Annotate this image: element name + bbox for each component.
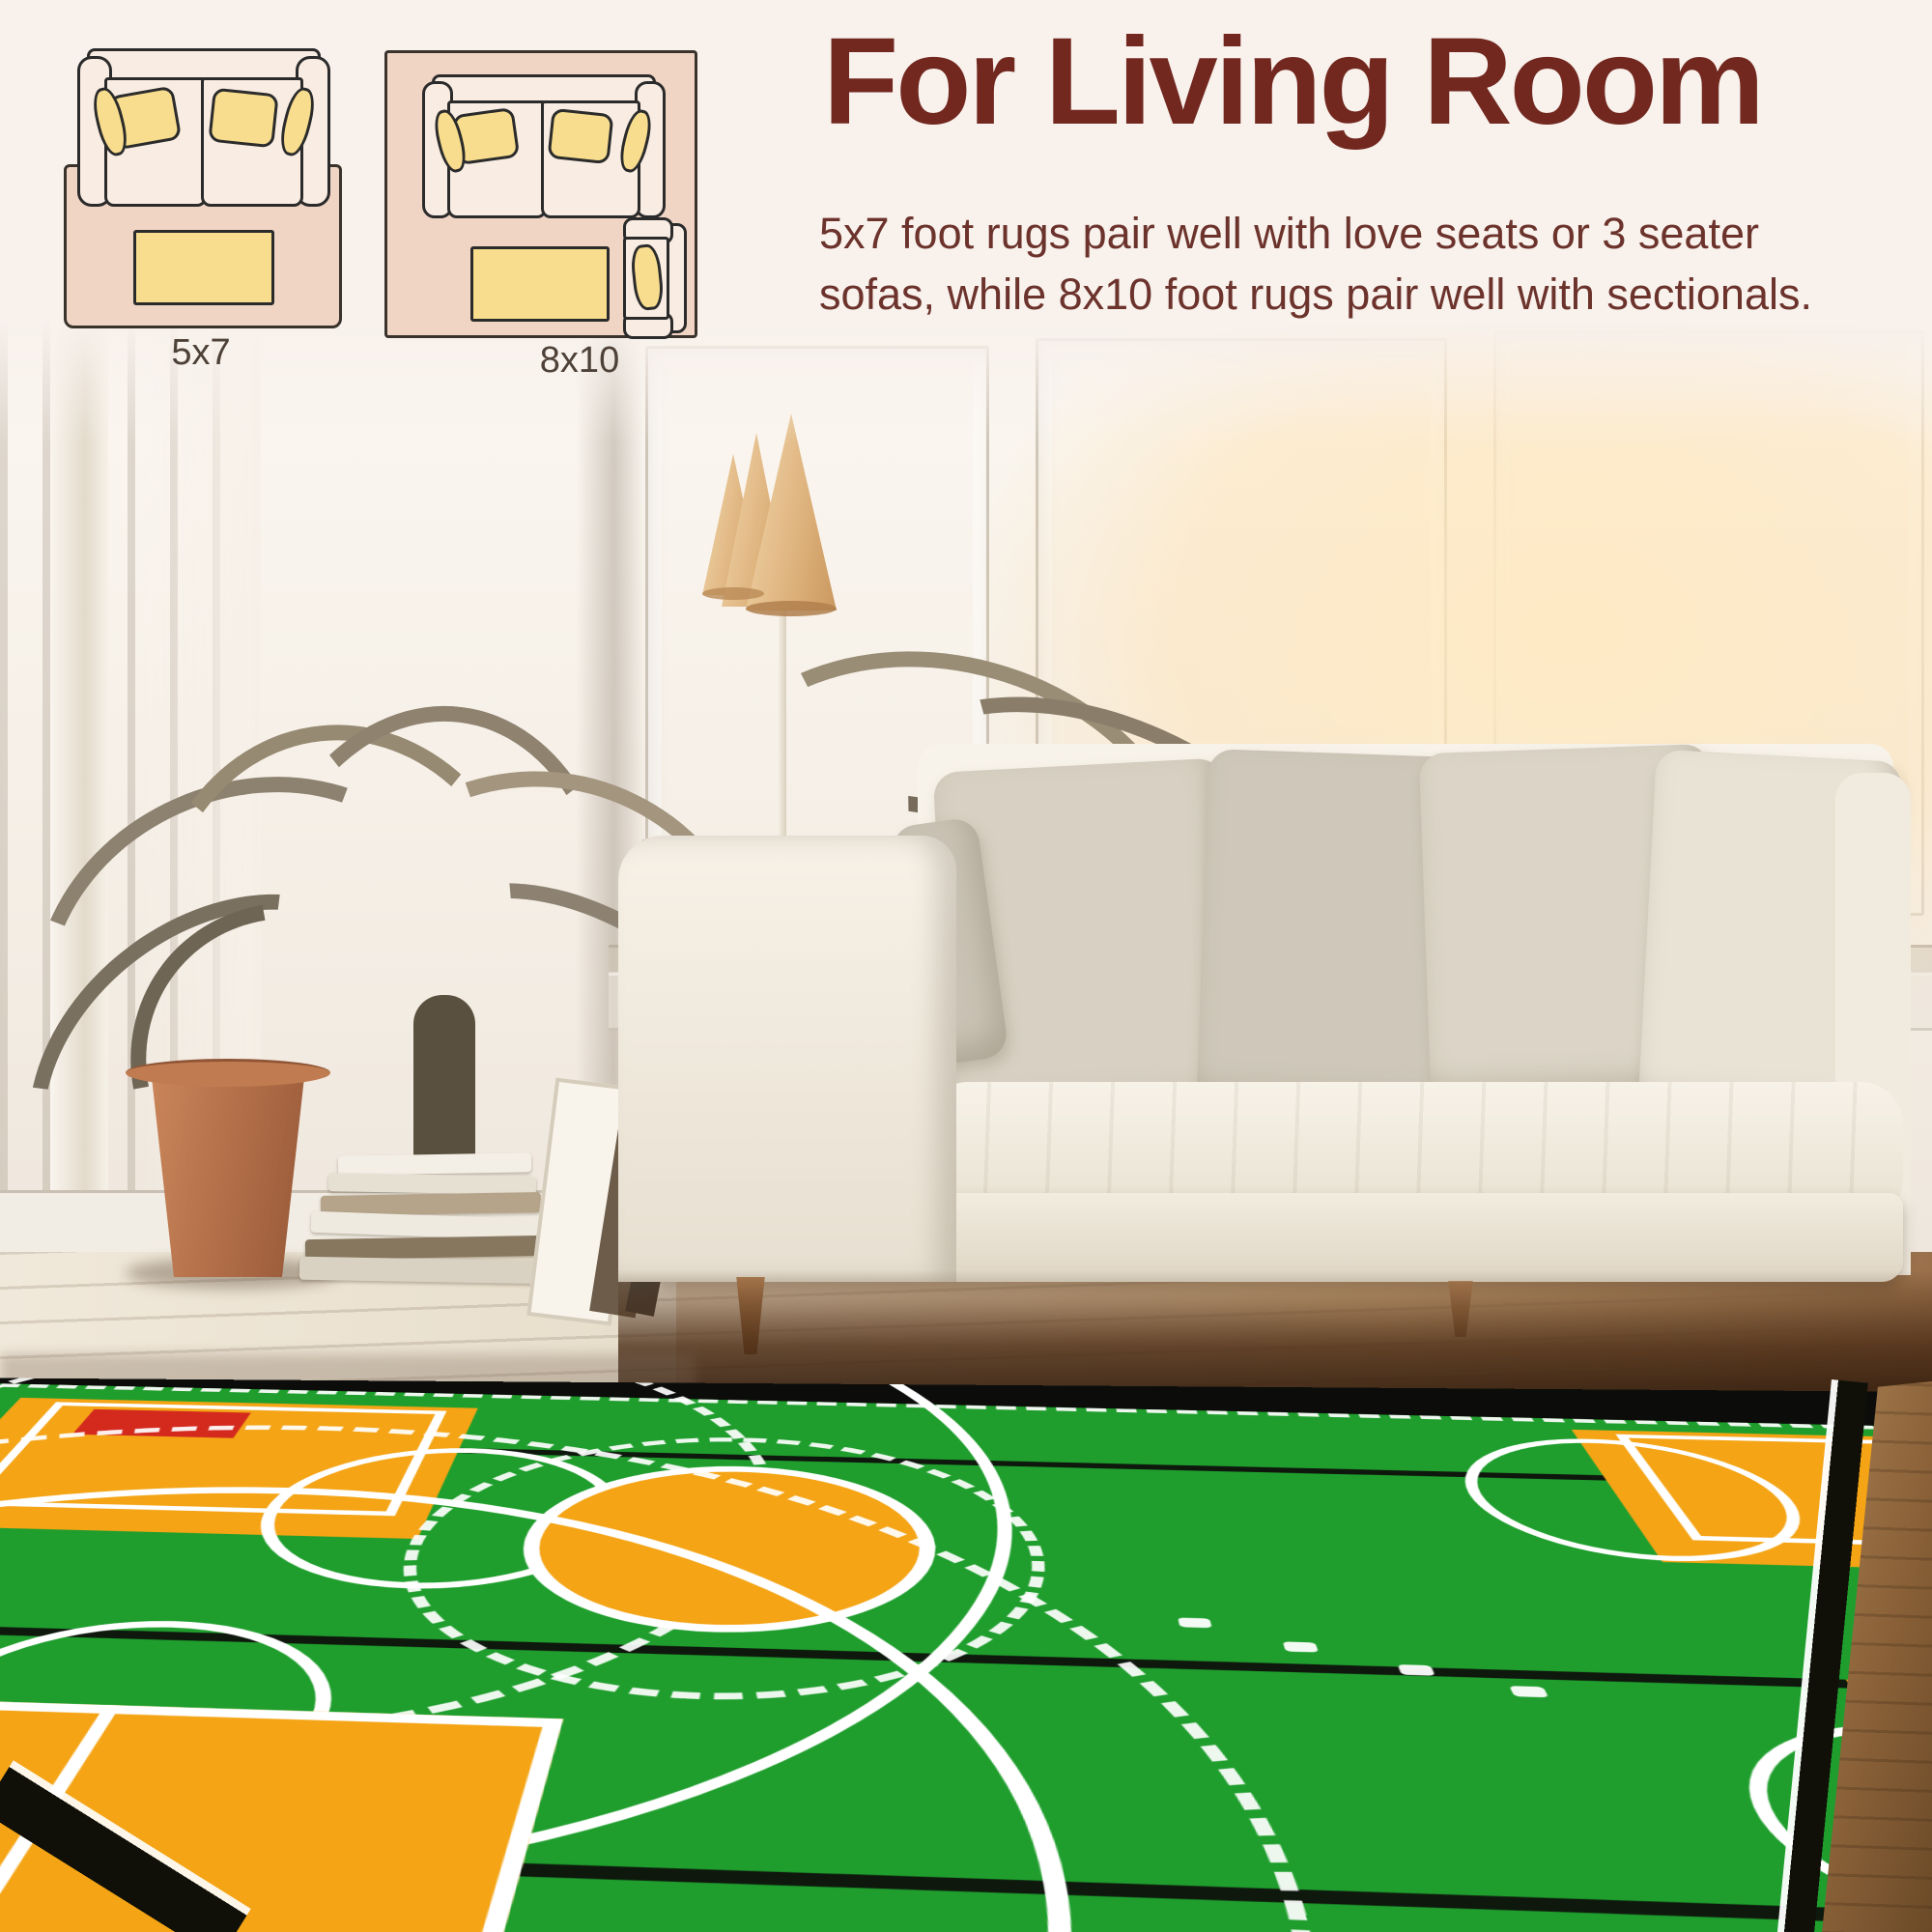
header: 5x7 8x10 — [0, 0, 1932, 415]
diagram-coffee-table — [133, 230, 274, 305]
size-diagram-5x7 — [56, 41, 346, 323]
diagram-sofa — [77, 48, 325, 208]
description-line: sofas, while 8x10 foot rugs pair well wi… — [819, 264, 1932, 325]
size-label-8x10: 8x10 — [483, 340, 676, 382]
living-room-photo — [0, 319, 1932, 1932]
sofa-pillow — [208, 88, 278, 149]
description-text: 5x7 foot rugs pair well with love seats … — [819, 203, 1932, 325]
diagram-sofa — [422, 74, 660, 219]
page-title: For Living Room — [823, 17, 1762, 147]
product-image: 5x7 8x10 — [0, 0, 1932, 1932]
vignette — [0, 319, 1932, 1932]
size-diagram-8x10 — [384, 50, 697, 338]
diagram-coffee-table — [470, 246, 610, 322]
size-label-5x7: 5x7 — [114, 332, 288, 374]
description-line: 5x7 foot rugs pair well with love seats … — [819, 203, 1932, 264]
sofa-pillow — [547, 108, 613, 164]
diagram-armchair — [621, 217, 683, 333]
